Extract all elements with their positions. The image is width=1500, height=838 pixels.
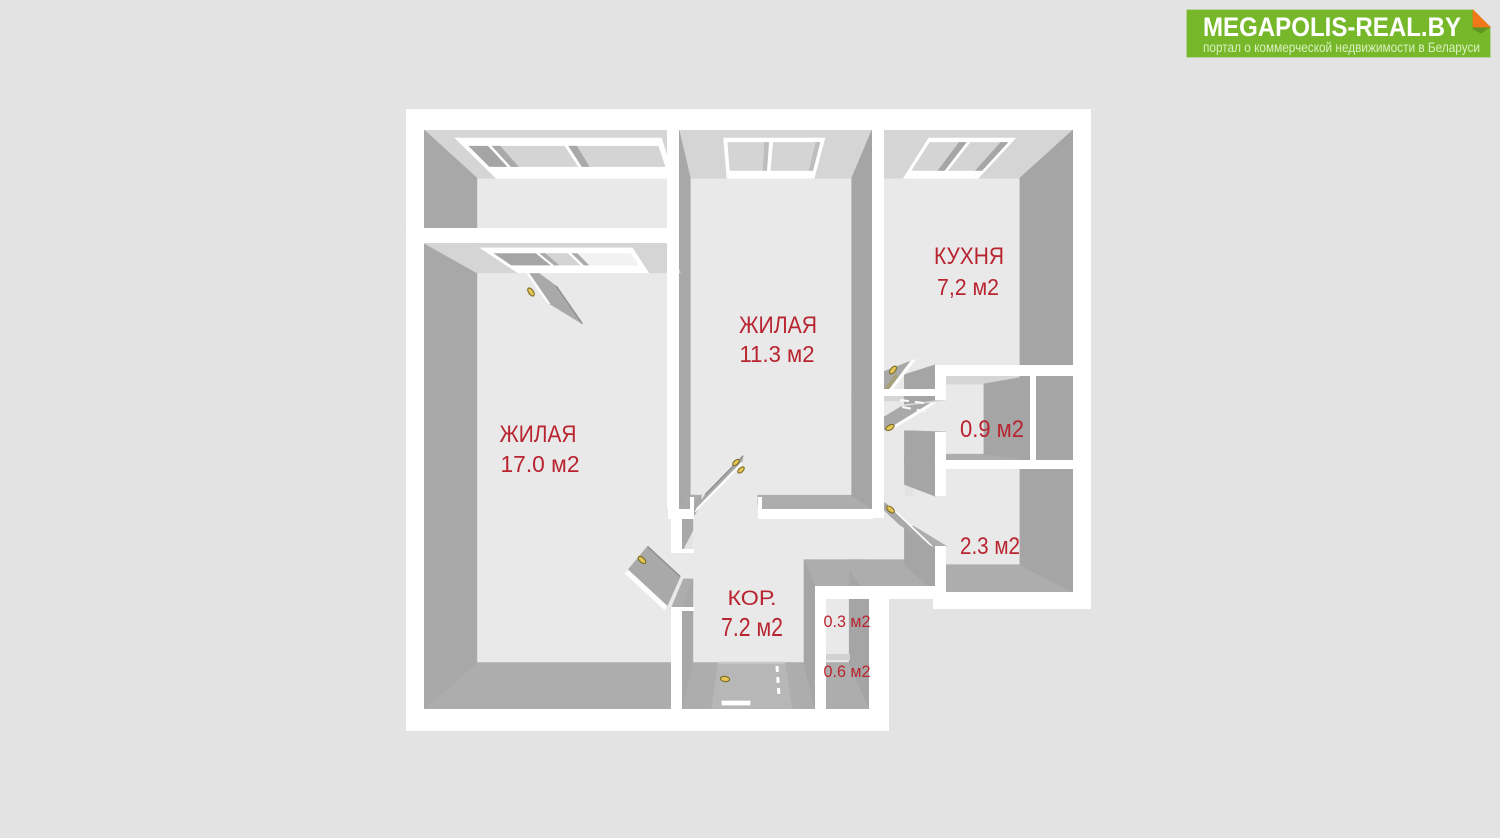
svg-text:КОР.: КОР. xyxy=(728,587,777,610)
svg-text:0.3 м2: 0.3 м2 xyxy=(824,612,871,631)
svg-text:2.3 м2: 2.3 м2 xyxy=(960,533,1020,560)
svg-text:7.2 м2: 7.2 м2 xyxy=(721,612,783,642)
svg-text:ЖИЛАЯ: ЖИЛАЯ xyxy=(500,421,577,448)
svg-text:КУХНЯ: КУХНЯ xyxy=(934,243,1004,270)
svg-text:7,2 м2: 7,2 м2 xyxy=(937,274,999,300)
svg-text:0.6 м2: 0.6 м2 xyxy=(824,662,871,681)
svg-text:17.0 м2: 17.0 м2 xyxy=(501,451,580,477)
svg-text:портал о коммерческой недвижим: портал о коммерческой недвижимости в Бел… xyxy=(1203,39,1480,55)
svg-text:11.3 м2: 11.3 м2 xyxy=(740,341,815,367)
svg-text:0.9 м2: 0.9 м2 xyxy=(960,416,1024,443)
svg-text:ЖИЛАЯ: ЖИЛАЯ xyxy=(739,312,817,339)
svg-text:MEGAPOLIS-REAL.BY: MEGAPOLIS-REAL.BY xyxy=(1203,12,1461,42)
